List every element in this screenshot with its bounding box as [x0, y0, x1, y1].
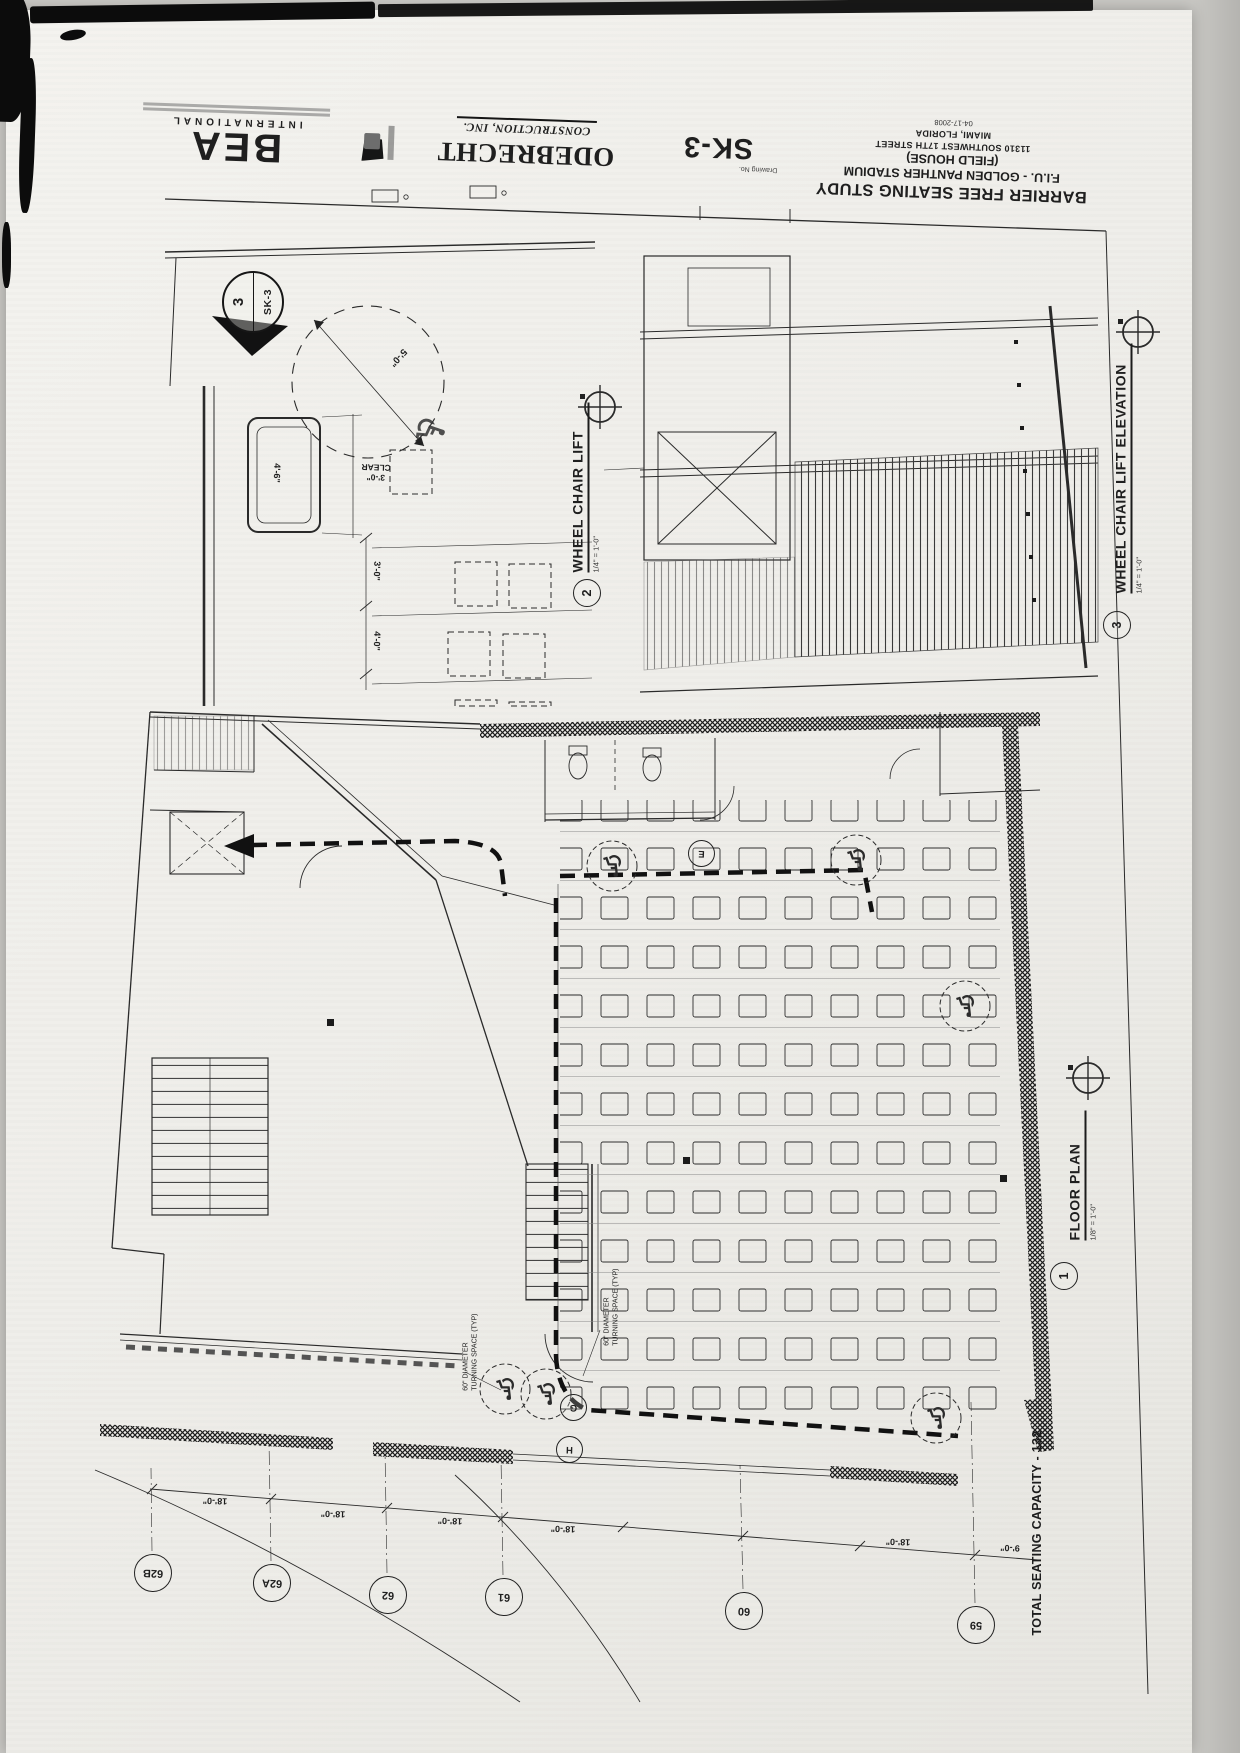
architect-logo: BEA INTERNATIONAL: [127, 100, 344, 169]
lift-elevation-title: WHEEL CHAIR LIFT ELEVATION: [1113, 344, 1133, 594]
detail-callout-number: 3: [224, 273, 254, 331]
contractor-logo: ODEBRECHT CONSTRUCTION, INC.: [400, 115, 652, 175]
lift-elevation-bubble: 3: [1103, 611, 1131, 639]
lift-plan-bubble: 2: [573, 579, 601, 607]
turning-note-line2: TURNING SPACE (TYP): [612, 1254, 621, 1346]
seating-capacity-note: TOTAL SEATING CAPACITY - 132: [1030, 1403, 1044, 1663]
detail-callout-marker: 3 SK-3: [222, 271, 284, 333]
sheet-number: SK-3: [658, 129, 779, 166]
fonseca-logo-text: [387, 126, 394, 160]
turning-note-line1: 60" DIAMETER: [462, 1299, 471, 1391]
bay-dim: 18'-0": [188, 1495, 242, 1507]
svg-text:♿: ♿: [533, 1375, 560, 1410]
floor-plan-title: FLOOR PLAN: [1067, 1111, 1087, 1241]
svg-text:♿: ♿: [952, 987, 979, 1022]
lift-plan-title: WHEEL CHAIR LIFT: [570, 403, 590, 573]
scanned-drawing-page: { "colors": {"ink": "#1f1f1f", "paper": …: [0, 0, 1240, 1753]
svg-text:♿: ♿: [843, 841, 870, 876]
contractor-name: ODEBRECHT: [400, 135, 651, 175]
turning-space-note: 60" DIAMETER TURNING SPACE (TYP): [603, 1254, 621, 1346]
dim-platform: 4'-6": [271, 448, 283, 498]
turning-note-line1: 60" DIAMETER: [603, 1254, 612, 1346]
dim-clear-value: 3'-0": [352, 471, 400, 482]
lift-elevation-scale: 1/4" = 1'-0": [1135, 344, 1144, 594]
lift-plan-label: WHEEL CHAIR LIFT 1/4" = 1'-0": [570, 403, 601, 573]
fonseca-logo-mark-2: [364, 133, 381, 150]
bay-dim: 9'-0": [983, 1542, 1037, 1554]
dim-clear-word: CLEAR: [352, 461, 400, 472]
drawing-line-art: ♿ ♿ ♿ ♿ ♿ ♿ ♿: [0, 0, 1240, 1753]
floor-plan-scale: 1/8" = 1'-0": [1089, 1111, 1098, 1241]
bay-dim: 18'-0": [536, 1523, 590, 1535]
fonseca-logo: [349, 112, 395, 166]
wheelchair-icon: ♿: [402, 407, 456, 456]
architect-name: BEA: [127, 124, 343, 169]
bay-dim: 18'-0": [306, 1508, 360, 1520]
dim-clear: 3'-0" CLEAR: [352, 461, 401, 482]
lift-plan-scale: 1/4" = 1'-0": [592, 403, 601, 573]
turning-note-line2: TURNING SPACE (TYP): [471, 1299, 480, 1391]
floor-plan-bubble: 1: [1050, 1262, 1078, 1290]
bay-dim: 18'-0": [423, 1515, 477, 1527]
lift-elevation-label: WHEEL CHAIR LIFT ELEVATION 1/4" = 1'-0": [1113, 344, 1144, 594]
svg-text:♿: ♿: [923, 1399, 950, 1434]
lift-elevation-drawing: [604, 256, 1160, 692]
bay-dim: 18'-0": [871, 1536, 925, 1548]
dim-row-depth-2: 4'-0": [371, 616, 383, 666]
turning-space-note: 60" DIAMETER TURNING SPACE (TYP): [462, 1299, 480, 1391]
contractor-subtitle: CONSTRUCTION, INC.: [457, 117, 597, 138]
floor-plan-label: FLOOR PLAN 1/8" = 1'-0": [1067, 1111, 1098, 1241]
dim-row-depth: 3'-0": [371, 546, 383, 596]
project-info: BARRIER FREE SEATING STUDY F.I.U. - GOLD…: [783, 112, 1121, 207]
sheet-number-block: Drawing No. SK-3: [657, 129, 778, 174]
detail-callout-sheet: SK-3: [254, 273, 283, 331]
svg-text:♿: ♿: [599, 847, 626, 882]
